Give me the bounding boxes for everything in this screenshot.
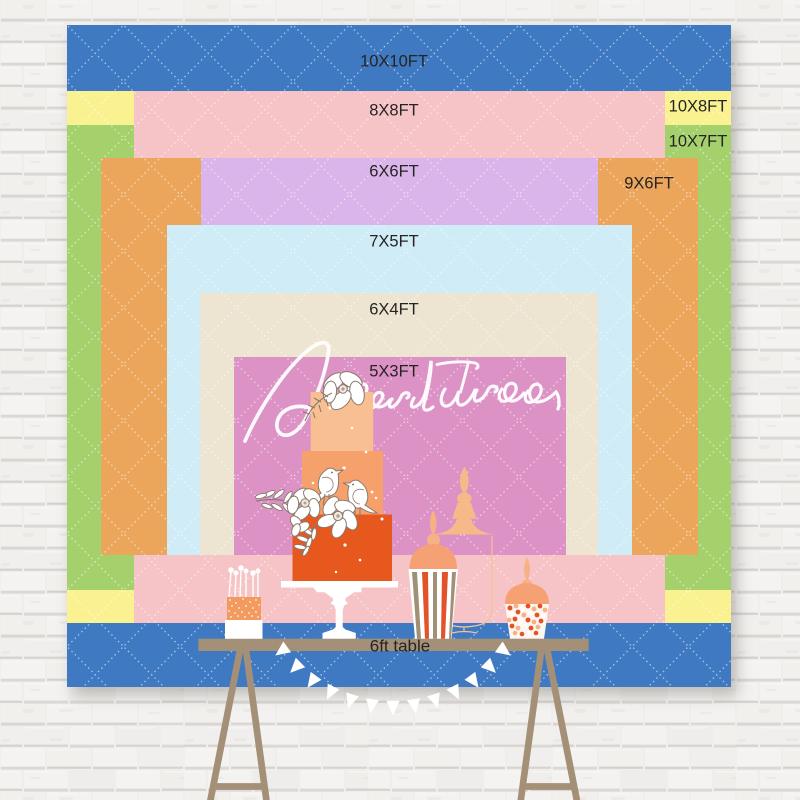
svg-text:6ft table: 6ft table: [370, 637, 431, 656]
